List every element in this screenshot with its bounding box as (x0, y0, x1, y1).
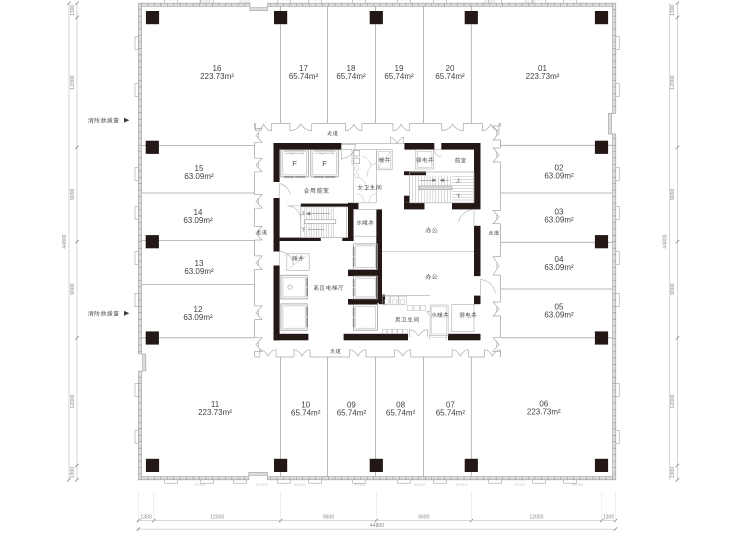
svg-text:9000: 9000 (670, 188, 676, 199)
svg-text:1300: 1300 (670, 5, 676, 16)
svg-text:9600: 9600 (323, 514, 334, 520)
svg-text:BYC1512: BYC1512 (573, 484, 584, 487)
svg-text:63.09m²: 63.09m² (544, 310, 574, 319)
svg-text:BYC1512: BYC1512 (355, 484, 366, 487)
svg-text:BYC1512: BYC1512 (295, 484, 306, 487)
svg-text:65.74m²: 65.74m² (289, 72, 319, 81)
svg-text:12000: 12000 (210, 514, 224, 520)
svg-text:1300: 1300 (70, 5, 76, 16)
svg-text:F: F (292, 159, 297, 168)
svg-text:65.74m²: 65.74m² (384, 72, 414, 81)
svg-text:65.74m²: 65.74m² (436, 408, 466, 417)
svg-text:63.09m²: 63.09m² (544, 263, 574, 272)
svg-text:44800: 44800 (62, 234, 68, 248)
svg-text:223.73m²: 223.73m² (200, 72, 234, 81)
svg-text:12000: 12000 (70, 394, 76, 408)
svg-text:9000: 9000 (70, 283, 76, 294)
svg-text:63.09m²: 63.09m² (544, 215, 574, 224)
svg-text:65.74m²: 65.74m² (336, 72, 366, 81)
svg-text:1300: 1300 (140, 514, 151, 520)
svg-text:63.09m²: 63.09m² (184, 172, 214, 181)
svg-text:BYC1512: BYC1512 (200, 1, 211, 4)
svg-text:BYC1512: BYC1512 (515, 484, 526, 487)
svg-text:65.74m²: 65.74m² (386, 408, 416, 417)
svg-text:BYC1512: BYC1512 (240, 1, 251, 4)
svg-text:9000: 9000 (70, 188, 76, 199)
svg-text:12000: 12000 (70, 75, 76, 89)
svg-text:BYC1512: BYC1512 (195, 484, 206, 487)
svg-text:63.09m²: 63.09m² (183, 216, 213, 225)
svg-text:BYC1512: BYC1512 (257, 484, 268, 487)
svg-text:9600: 9600 (418, 514, 429, 520)
svg-text:63.09m²: 63.09m² (183, 313, 213, 322)
svg-text:65.74m²: 65.74m² (337, 408, 367, 417)
svg-text:65.74m²: 65.74m² (291, 408, 321, 417)
svg-text:1300: 1300 (70, 467, 76, 478)
svg-text:BYC1512: BYC1512 (485, 1, 496, 4)
svg-text:223.73m²: 223.73m² (527, 407, 561, 416)
svg-text:BYC1512: BYC1512 (457, 484, 468, 487)
svg-text:BYC1512: BYC1512 (525, 1, 536, 4)
svg-text:12000: 12000 (529, 514, 543, 520)
svg-text:63.09m²: 63.09m² (544, 171, 574, 180)
svg-text:223.73m²: 223.73m² (526, 72, 560, 81)
svg-text:BYC1512: BYC1512 (415, 484, 426, 487)
svg-text:44800: 44800 (370, 523, 384, 529)
svg-text:9000: 9000 (670, 283, 676, 294)
svg-text:44800: 44800 (663, 234, 669, 248)
svg-text:223.73m²: 223.73m² (198, 408, 232, 417)
svg-text:1300: 1300 (603, 514, 614, 520)
svg-text:12000: 12000 (670, 394, 676, 408)
svg-text:12000: 12000 (670, 75, 676, 89)
svg-text:F: F (322, 159, 327, 168)
svg-text:1300: 1300 (670, 467, 676, 478)
svg-text:63.09m²: 63.09m² (184, 267, 214, 276)
svg-text:65.74m²: 65.74m² (435, 72, 465, 81)
